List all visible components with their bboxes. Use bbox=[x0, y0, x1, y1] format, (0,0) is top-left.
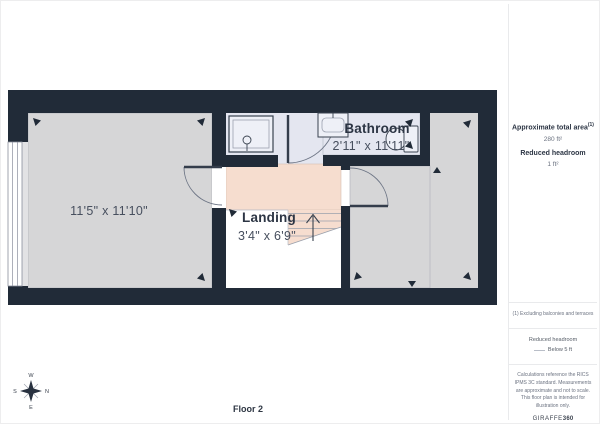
bathroom-dimensions: 2'11" x 11'11" bbox=[333, 139, 410, 153]
landing-dimensions: 3'4" x 6'9" bbox=[238, 229, 296, 243]
floorplan-page: 11'5" x 11'10" Bathroom 2'11" x 11'11" L… bbox=[0, 0, 600, 424]
bathroom-label: Bathroom bbox=[344, 121, 409, 136]
legend-row: Below 5 ft bbox=[509, 347, 597, 353]
shower-icon bbox=[229, 116, 273, 152]
legend-title: Reduced headroom bbox=[509, 337, 597, 343]
compass-south-label: S bbox=[13, 389, 17, 395]
area-summary: Approximate total area(1) 280 ft² Reduce… bbox=[509, 122, 597, 168]
bathroom-entry-floor bbox=[278, 113, 323, 164]
sidebar-divider bbox=[509, 364, 597, 365]
window-icon bbox=[8, 142, 22, 286]
window-sill bbox=[22, 142, 28, 286]
reduced-headroom-label: Reduced headroom bbox=[509, 150, 597, 158]
legend-item-label: Below 5 ft bbox=[548, 347, 572, 353]
room-right-floor-a bbox=[430, 113, 478, 288]
compass-west-label: W bbox=[28, 373, 34, 379]
room-right-floor-b bbox=[350, 166, 430, 288]
footnote-section: (1) Excluding balconies and terraces bbox=[509, 311, 597, 319]
brand-logo: GIRAFFE360 bbox=[509, 416, 597, 422]
floor-label: Floor 2 bbox=[233, 404, 263, 414]
reduced-headroom-swatch-icon bbox=[534, 350, 545, 351]
sidebar-divider bbox=[509, 328, 597, 329]
footnote-marker: (1) bbox=[588, 122, 594, 128]
total-area-label: Approximate total area(1) bbox=[509, 122, 597, 133]
room-left-dimensions: 11'5" x 11'10" bbox=[70, 204, 148, 218]
compass-east-label: E bbox=[29, 405, 33, 411]
disclaimer-text: Calculations reference the RICS IPMS 3C … bbox=[509, 372, 597, 411]
sidebar-divider bbox=[509, 302, 597, 303]
compass-north-label: N bbox=[45, 389, 49, 395]
landing-label: Landing bbox=[242, 210, 296, 225]
reduced-headroom-value: 1 ft² bbox=[509, 161, 597, 168]
compass-icon: W S N E bbox=[13, 373, 49, 411]
footnote-text: (1) Excluding balconies and terraces bbox=[509, 311, 597, 319]
landing-floor bbox=[226, 164, 341, 210]
info-sidebar: Approximate total area(1) 280 ft² Reduce… bbox=[508, 4, 597, 420]
room-left-floor bbox=[28, 113, 212, 288]
door-threshold bbox=[212, 167, 226, 208]
total-area-value: 280 ft² bbox=[509, 136, 597, 143]
legend-section: Reduced headroom Below 5 ft bbox=[509, 337, 597, 353]
disclaimer-section: Calculations reference the RICS IPMS 3C … bbox=[509, 372, 597, 422]
